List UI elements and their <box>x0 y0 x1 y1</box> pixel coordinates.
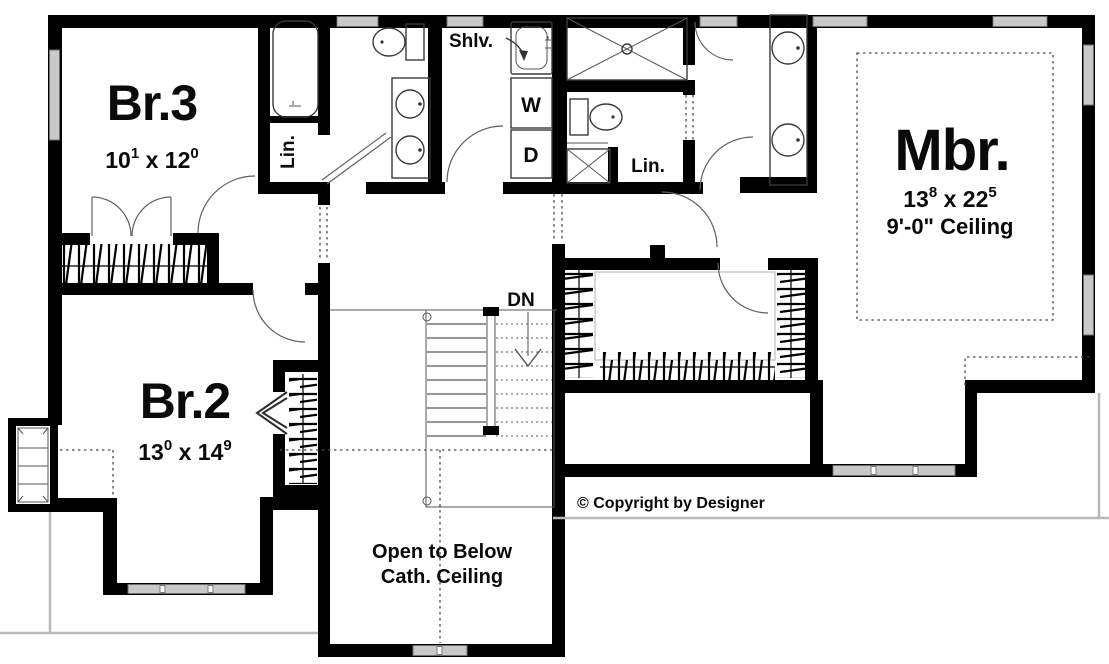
window <box>447 17 483 27</box>
small-shower-icon <box>567 143 610 183</box>
window <box>50 50 60 140</box>
room-dim-br3: 101 x 120 <box>105 145 198 173</box>
door-arc <box>198 176 255 233</box>
down-arrow-icon <box>515 312 541 366</box>
stairs-down-label: DN <box>507 290 534 311</box>
floor-plan-drawing: Br.3 101 x 120 Br.2 130 x 149 Mbr. 138 x… <box>0 0 1109 664</box>
shelves-arrow-icon <box>506 38 528 61</box>
room-label-mbr: Mbr. <box>894 118 1009 183</box>
vanity-sink-icon <box>392 78 430 178</box>
window <box>1084 275 1094 335</box>
window <box>700 17 737 27</box>
window <box>128 585 245 594</box>
copyright-notice: © Copyright by Designer <box>577 495 765 512</box>
bifold-door <box>257 392 287 434</box>
pocket-door-leaf <box>322 133 391 184</box>
toilet-icon <box>570 99 622 135</box>
floor-plan: Br.3 101 x 120 Br.2 130 x 149 Mbr. 138 x… <box>0 0 1109 664</box>
door-arc <box>718 263 768 313</box>
open-below-label-line2: Cath. Ceiling <box>381 566 503 588</box>
master-vanity-sink-icon <box>770 15 807 185</box>
window <box>833 466 955 476</box>
laundry-sink-icon <box>511 22 552 74</box>
linen-label-master: Lin. <box>631 156 665 177</box>
linen-label-hall: Lin. <box>278 135 299 169</box>
window <box>993 17 1047 27</box>
bay-window-seat <box>8 418 58 512</box>
room-label-br2: Br.2 <box>140 373 231 429</box>
stairs <box>330 307 557 507</box>
stair-treads <box>427 324 552 436</box>
dryer-label: D <box>523 144 538 167</box>
toilet-icon <box>373 24 424 60</box>
ceiling-note-mbr: 9'-0" Ceiling <box>887 214 1014 239</box>
double-door-arc <box>92 197 171 236</box>
room-dim-br2: 130 x 149 <box>138 437 231 465</box>
room-dim-mbr: 138 x 225 <box>903 184 996 212</box>
window <box>1084 45 1094 105</box>
stair-rail <box>423 307 499 505</box>
open-below-label-line1: Open to Below <box>372 541 512 563</box>
door-arc <box>662 192 717 247</box>
room-label-br3: Br.3 <box>107 75 198 131</box>
shelves-label: Shlv. <box>449 31 493 52</box>
window <box>813 17 867 27</box>
door-arc <box>253 290 305 342</box>
washer-label: W <box>521 94 541 117</box>
window <box>337 17 378 27</box>
door-arc <box>447 126 503 182</box>
bathtub-icon <box>273 21 318 117</box>
